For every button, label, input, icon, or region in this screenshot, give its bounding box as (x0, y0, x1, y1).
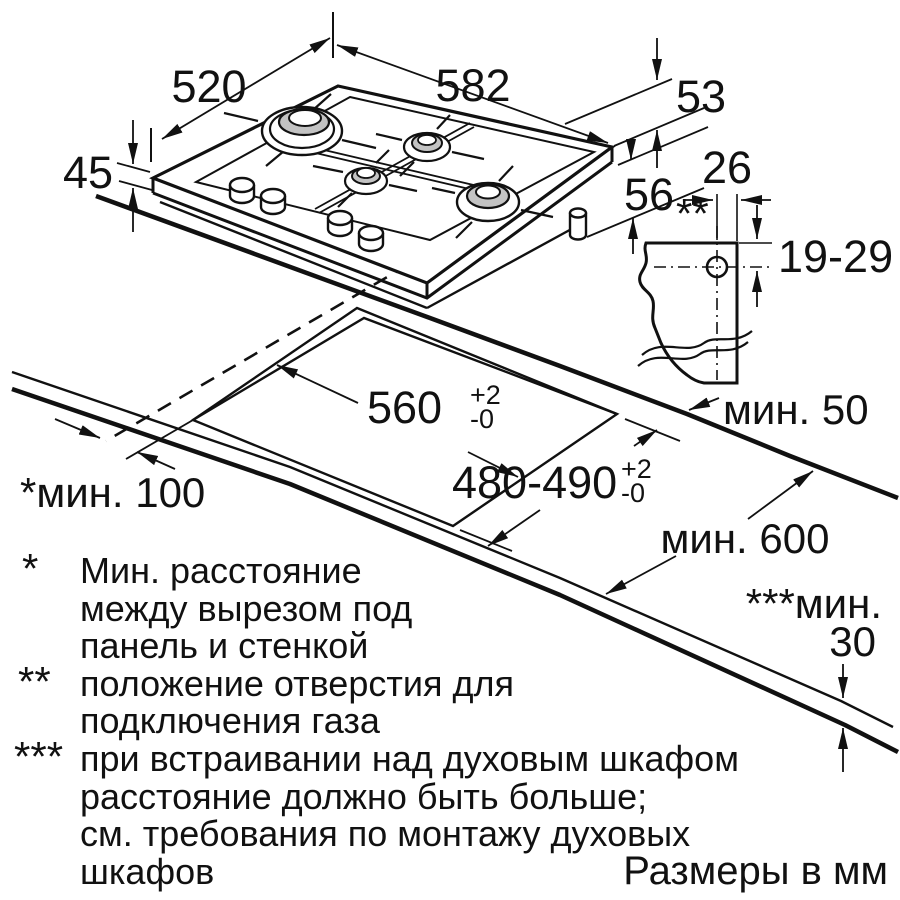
footnote2-line2: подключения газа (80, 700, 381, 741)
dim-hob-depth: 520 (171, 61, 246, 112)
dim-cutout-depth: 480-490 (452, 457, 617, 508)
burner-large (457, 183, 519, 221)
footnote2-line1: положение отверстия для (80, 663, 514, 704)
dim-gas-offset: 26 (702, 142, 752, 193)
dim-cutout-depth-tol-minus: -0 (621, 478, 645, 508)
dim-body-depth: 56 (624, 169, 674, 220)
footnote1-line3: панель и стенкой (80, 625, 368, 666)
dim-min-worktop-depth: мин. 600 (661, 515, 830, 562)
dim-hob-width: 582 (435, 60, 510, 111)
installation-diagram-page: 582 520 45 53 56 26 ** 19-29 мин. 50 560… (0, 0, 900, 900)
dim-line-560-a (277, 365, 358, 403)
burner-medium (404, 133, 450, 161)
dim-arrow-min50 (689, 398, 719, 410)
footnote1-line2: между вырезом под (80, 588, 412, 629)
cutout-ext-right (625, 419, 680, 441)
dim-back-gap: 53 (676, 71, 726, 122)
footnote3-line3: см. требования по монтажу духовых (80, 813, 690, 854)
cutout-ext-left (126, 420, 193, 459)
hob-installation-diagram: 582 520 45 53 56 26 ** 19-29 мин. 50 560… (0, 0, 900, 900)
ext-lines-45 (117, 163, 152, 190)
dim-min-side: *мин. 100 (20, 469, 205, 516)
burner-small (345, 168, 387, 194)
dim-min-rear: мин. 50 (723, 386, 869, 433)
dim-arrow-min100-right (137, 452, 175, 469)
footnote1-marker: * (22, 545, 38, 592)
dim-arrow-min600-top (748, 471, 813, 519)
dim-cutout-width-tol-minus: -0 (470, 404, 494, 434)
footnote3-line4: шкафов (80, 851, 214, 892)
dim-cutout-width: 560 (367, 382, 442, 433)
gas-footnote-marker: ** (676, 190, 709, 237)
footnote3-marker: *** (14, 733, 63, 780)
gas-pipe-stub (570, 209, 586, 240)
footnote3-line1: при встраивании над духовым шкафом (80, 738, 739, 779)
units-note: Размеры в мм (623, 849, 888, 893)
dim-hob-height: 45 (63, 147, 113, 198)
footnote1-line1: Мин. расстояние (80, 550, 362, 591)
footnote2-marker: ** (18, 658, 51, 705)
footnote3-line2: расстояние должно быть больше; (80, 776, 647, 817)
dim-line-480-a (634, 430, 657, 446)
burner-wok-large (262, 107, 342, 155)
dim-arrow-min100-left (55, 419, 100, 438)
dim-line-480-b (488, 510, 540, 546)
dim-min-front-value: 30 (829, 618, 876, 665)
dim-gas-range: 19-29 (778, 231, 893, 282)
